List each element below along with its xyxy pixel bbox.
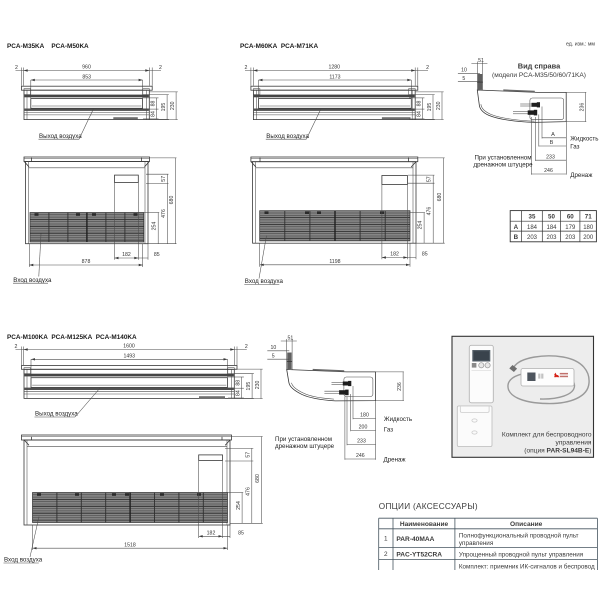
svg-text:203: 203 [546,235,557,241]
svg-text:B: B [514,234,519,241]
svg-text:195: 195 [161,103,167,112]
svg-text:233: 233 [357,439,366,445]
svg-text:Газ: Газ [384,426,393,433]
svg-text:84: 84 [236,390,242,396]
svg-text:Полнофункциональный проводной: Полнофункциональный проводной пульт [459,532,579,540]
svg-text:57: 57 [161,176,167,182]
svg-text:B: B [550,140,554,146]
svg-text:254: 254 [418,221,424,230]
svg-text:управления: управления [459,540,493,547]
svg-text:2: 2 [384,551,388,558]
svg-text:2: 2 [245,344,248,350]
svg-text:Выход воздуха: Выход воздуха [39,133,82,140]
svg-text:PAC-YT52CRA: PAC-YT52CRA [396,552,442,559]
svg-text:179: 179 [565,225,576,231]
svg-text:51: 51 [478,58,484,64]
svg-text:60: 60 [567,214,574,221]
svg-text:230: 230 [436,101,442,110]
svg-text:195: 195 [427,103,433,112]
svg-text:2: 2 [245,65,248,71]
svg-text:Жидкость: Жидкость [384,416,412,423]
svg-text:680: 680 [437,193,443,202]
svg-text:2: 2 [159,65,162,71]
svg-text:878: 878 [82,259,91,265]
svg-text:184: 184 [527,225,538,231]
svg-text:Дренаж: Дренаж [570,172,593,179]
svg-text:680: 680 [255,474,261,483]
svg-text:236: 236 [397,382,403,391]
svg-text:Вход воздуха: Вход воздуха [245,278,284,285]
svg-text:203: 203 [565,235,576,241]
svg-text:PCA-M60KA PCA-M71KA: PCA-M60KA PCA-M71KA [240,43,319,50]
svg-text:При установленном: При установленном [475,155,532,162]
svg-text:Комплект для беспроводного: Комплект для беспроводного [502,431,592,439]
svg-text:5: 5 [462,76,465,82]
svg-text:960: 960 [82,65,91,71]
svg-text:2: 2 [15,65,18,71]
svg-text:1: 1 [384,536,388,543]
svg-text:200: 200 [583,235,594,241]
svg-text:254: 254 [236,501,242,510]
svg-text:PCA-M100KA PCA-M125KA PCA-M1: PCA-M100KA PCA-M125KA PCA-M140KA [7,334,137,341]
svg-text:182: 182 [122,252,131,258]
svg-text:476: 476 [161,209,167,218]
svg-text:180: 180 [360,413,369,419]
svg-text:При установленном: При установленном [275,436,332,443]
svg-text:180: 180 [583,225,594,231]
svg-text:1518: 1518 [124,542,136,548]
svg-text:230: 230 [255,380,261,389]
svg-text:84: 84 [151,111,157,117]
svg-text:246: 246 [544,168,553,174]
svg-text:200: 200 [359,425,368,431]
svg-text:57: 57 [427,176,433,182]
svg-text:управления: управления [556,439,592,446]
svg-text:10: 10 [271,345,277,351]
svg-text:Вход воздуха: Вход воздуха [4,557,43,564]
svg-text:203: 203 [527,235,538,241]
svg-text:51: 51 [288,336,294,342]
svg-text:476: 476 [427,207,433,216]
svg-text:Газ: Газ [570,144,579,151]
svg-text:PCA-M35KA PCA-M50KA: PCA-M35KA PCA-M50KA [7,43,89,50]
svg-text:476: 476 [245,487,251,496]
svg-text:88: 88 [417,101,423,107]
svg-text:85: 85 [238,531,244,537]
svg-text:10: 10 [461,68,467,74]
svg-text:246: 246 [356,453,365,459]
svg-text:Выход воздуха: Выход воздуха [266,133,309,140]
svg-text:PAR-40MAA: PAR-40MAA [396,536,434,543]
svg-text:(модели PCA-M35/50/60/71KA): (модели PCA-M35/50/60/71KA) [492,72,586,79]
svg-text:Наименование: Наименование [400,521,449,528]
svg-text:236: 236 [579,103,585,112]
svg-text:230: 230 [170,101,176,110]
svg-text:35: 35 [529,214,536,221]
svg-text:184: 184 [546,225,557,231]
svg-text:Упрощенный проводной пульт упр: Упрощенный проводной пульт управления [459,550,583,558]
svg-text:A: A [514,224,519,231]
svg-text:195: 195 [246,382,252,391]
svg-text:1600: 1600 [123,344,135,350]
svg-text:Комплект: приемник ИК-сигналов: Комплект: приемник ИК-сигналов и беспров… [459,562,595,570]
svg-text:дренажном штуцере: дренажном штуцере [473,162,533,169]
svg-text:Вход воздуха: Вход воздуха [13,277,52,284]
svg-text:1173: 1173 [329,74,340,80]
svg-text:233: 233 [546,154,555,160]
svg-text:дренажном штуцере: дренажном штуцере [275,443,335,450]
svg-text:Выход воздуха: Выход воздуха [35,411,78,418]
svg-text:71: 71 [585,214,592,221]
svg-text:85: 85 [154,252,160,258]
svg-text:Описание: Описание [510,521,543,528]
svg-text:1280: 1280 [329,65,341,71]
svg-text:88: 88 [151,101,157,107]
svg-text:2: 2 [426,65,429,71]
svg-text:(опция PAR-SL94B-E): (опция PAR-SL94B-E) [524,447,591,454]
svg-text:84: 84 [417,111,423,117]
svg-text:A: A [551,132,555,138]
svg-text:Вид справа: Вид справа [518,62,561,71]
svg-text:50: 50 [548,214,555,221]
svg-text:Жидкость: Жидкость [570,135,598,142]
svg-text:1493: 1493 [124,354,136,360]
svg-text:182: 182 [207,531,216,537]
svg-text:88: 88 [236,380,242,386]
svg-text:182: 182 [390,252,399,258]
svg-text:680: 680 [169,196,175,205]
svg-text:853: 853 [82,74,91,80]
svg-text:2: 2 [15,344,18,350]
svg-text:254: 254 [152,222,158,231]
svg-text:Дренаж: Дренаж [384,456,407,463]
svg-text:5: 5 [272,354,275,360]
svg-text:1198: 1198 [329,259,340,265]
svg-text:57: 57 [245,452,251,458]
svg-text:ед. изм.: мм: ед. изм.: мм [566,42,595,48]
svg-text:85: 85 [422,252,428,258]
svg-text:ОПЦИИ (АКСЕССУАРЫ): ОПЦИИ (АКСЕССУАРЫ) [379,502,478,511]
